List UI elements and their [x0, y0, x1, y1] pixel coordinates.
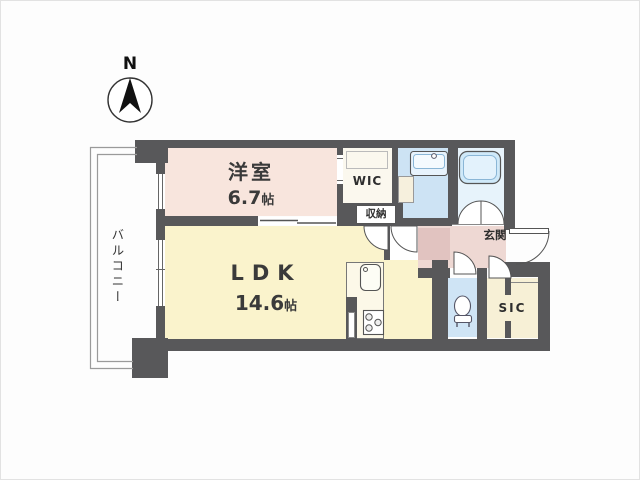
ldk-size-value: 14.6 [235, 291, 284, 315]
sic-door-arc [489, 256, 511, 278]
sic-label: SIC [487, 302, 538, 316]
wic-shelf-line [347, 152, 388, 169]
bathtub-icon [460, 152, 501, 184]
kitchen-sink-icon [361, 265, 381, 291]
ldk-size: 14.6帖 [196, 292, 336, 315]
ldk-door-arc [391, 226, 417, 252]
western-room-size-unit: 帖 [261, 193, 274, 208]
western-room-size: 6.7帖 [185, 188, 317, 210]
wic-label: WIC [343, 175, 392, 189]
toilet-icon [455, 296, 472, 327]
entrance-door-arc [516, 231, 549, 264]
washbasin-icon [411, 152, 448, 176]
storage-label: 収納 [356, 205, 396, 224]
sliding-door-lines [260, 221, 336, 224]
toilet-door-arc [454, 252, 476, 274]
compass-north-label: N [118, 55, 142, 75]
entrance-label: 玄関 [477, 229, 513, 242]
ldk-size-unit: 帖 [284, 299, 297, 314]
north-compass-icon [108, 78, 152, 122]
ldk-label: LDK [196, 261, 336, 285]
western-room-size-value: 6.7 [228, 187, 262, 209]
floorplan-image: N 洋室 6.7帖 LDK 14.6帖 WIC 収納 玄関 SIC バルコニー [0, 0, 640, 480]
western-room-label: 洋室 [185, 161, 317, 184]
storage-door-arc [364, 226, 388, 250]
plan-linework [0, 0, 640, 480]
stove-icon [364, 311, 384, 335]
balcony-label: バルコニー [109, 221, 123, 313]
